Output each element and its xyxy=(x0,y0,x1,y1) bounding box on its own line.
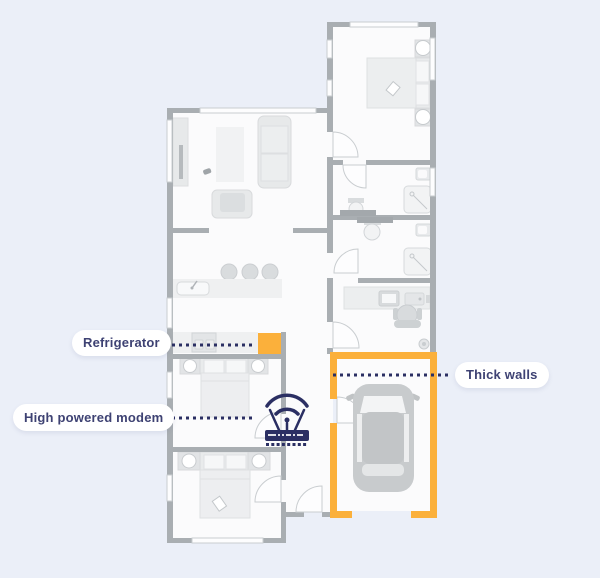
lamp-icon xyxy=(252,454,266,468)
tv-icon xyxy=(179,145,183,179)
refrigerator-marker xyxy=(258,333,281,354)
lamp-icon xyxy=(184,360,197,373)
label-thick-walls: Thick walls xyxy=(455,362,549,388)
label-refrigerator: Refrigerator xyxy=(72,330,171,356)
floor-plan xyxy=(0,0,600,578)
lamp-icon xyxy=(416,110,431,125)
scene: Refrigerator High powered modem Thick wa… xyxy=(0,0,600,578)
lamp-icon xyxy=(252,360,265,373)
car-icon xyxy=(346,384,421,492)
stool-icon xyxy=(221,264,237,280)
label-high-powered-modem: High powered modem xyxy=(13,404,174,431)
lamp-icon xyxy=(182,454,196,468)
lamp-icon xyxy=(416,41,431,56)
stool-icon xyxy=(262,264,278,280)
stool-icon xyxy=(242,264,258,280)
